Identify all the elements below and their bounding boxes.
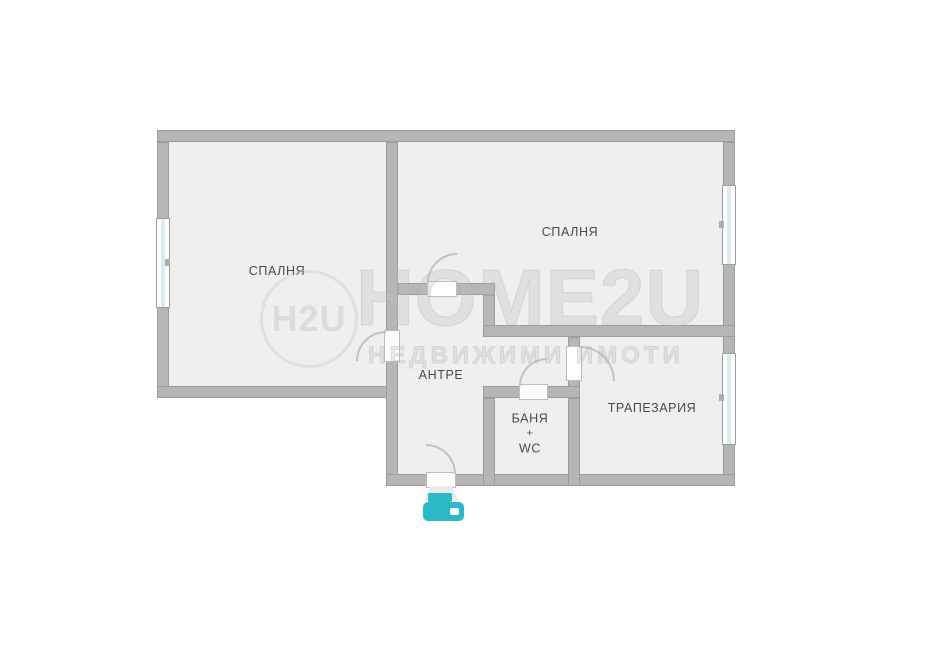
room-label-dining: ТРАПЕЗАРИЯ xyxy=(608,401,697,415)
wall-bath-left xyxy=(483,398,495,486)
wall-bedroom2-bottom xyxy=(483,325,735,337)
wall-top xyxy=(157,130,735,142)
floor-plan: СПАЛНЯ СПАЛНЯ АНТРЕ БАНЯ + WC ТРАПЕЗАРИЯ… xyxy=(0,0,931,648)
window-handle-mark xyxy=(719,221,724,228)
bathroom-label-line1: БАНЯ xyxy=(512,412,549,427)
bathroom-label-line3: WC xyxy=(512,442,549,457)
room-label-hallway: АНТРЕ xyxy=(419,368,464,382)
wall-bath-right xyxy=(568,398,580,486)
room-label-bedroom-2: СПАЛНЯ xyxy=(542,225,598,239)
wall-bedroom1-bottom xyxy=(157,386,398,398)
window-bedroom2 xyxy=(722,185,736,265)
room-label-bedroom-1: СПАЛНЯ xyxy=(249,264,305,278)
wall-bedrooms-divider xyxy=(386,142,398,486)
window-handle-mark xyxy=(719,394,724,401)
printer-icon-tray xyxy=(428,493,452,502)
door-bedroom2 xyxy=(427,281,457,297)
bathroom-label-line2: + xyxy=(512,427,549,442)
door-entrance xyxy=(426,472,456,488)
printer-icon-slot xyxy=(450,508,459,515)
printer-icon xyxy=(423,493,464,521)
door-bathroom xyxy=(519,384,548,400)
room-label-bathroom: БАНЯ + WC xyxy=(512,412,549,457)
window-dining xyxy=(722,353,736,445)
window-handle-mark xyxy=(165,259,170,266)
door-bedroom1 xyxy=(384,330,400,362)
